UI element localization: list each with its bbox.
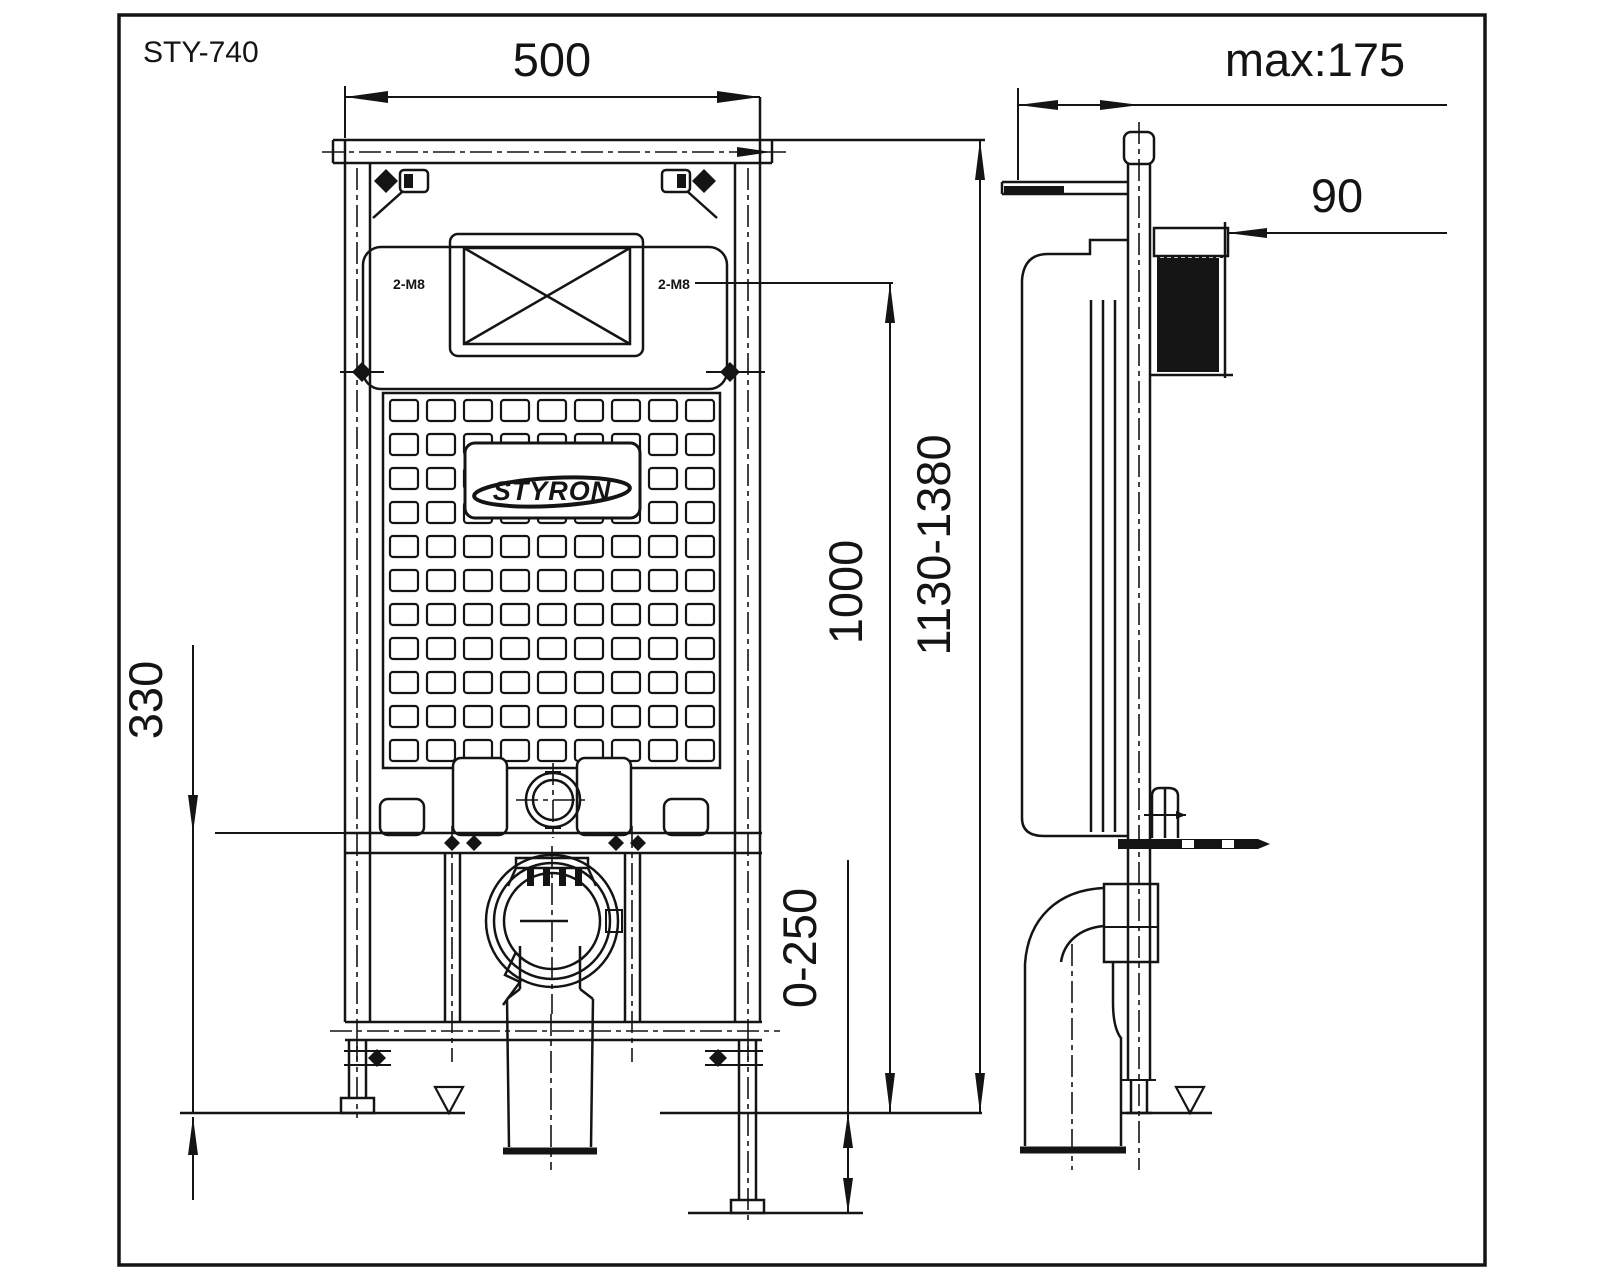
svg-text:1000: 1000 (819, 540, 872, 645)
dim-flush-depth: 90 (1311, 169, 1363, 222)
svg-text:0-250: 0-250 (773, 888, 826, 1008)
hole-label-left: 2-M8 (393, 276, 425, 292)
brand-logo: STYRON (465, 443, 640, 518)
hole-label-right: 2-M8 (658, 276, 690, 292)
dim-wall-offset: max:175 (1225, 33, 1405, 86)
svg-text:STYRON: STYRON (493, 476, 612, 506)
technical-drawing: STY-740 500 (0, 0, 1600, 1280)
svg-text:330: 330 (119, 661, 172, 739)
dim-frame-width: 500 (513, 33, 591, 86)
svg-text:1130-1380: 1130-1380 (907, 434, 960, 655)
drawing-border (119, 15, 1485, 1265)
model-code-label: STY-740 (143, 36, 259, 69)
